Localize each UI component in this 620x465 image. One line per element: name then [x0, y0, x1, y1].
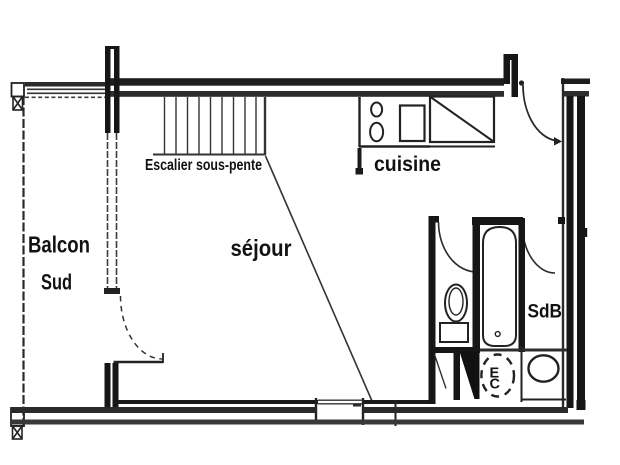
svg-text:séjour: séjour: [231, 235, 292, 261]
svg-text:SdB: SdB: [528, 301, 563, 323]
svg-text:Escalier sous-pente: Escalier sous-pente: [145, 157, 262, 174]
svg-text:Balcon: Balcon: [28, 232, 90, 258]
svg-text:C: C: [490, 377, 501, 393]
svg-text:cuisine: cuisine: [374, 152, 441, 176]
svg-text:Sud: Sud: [41, 270, 72, 295]
